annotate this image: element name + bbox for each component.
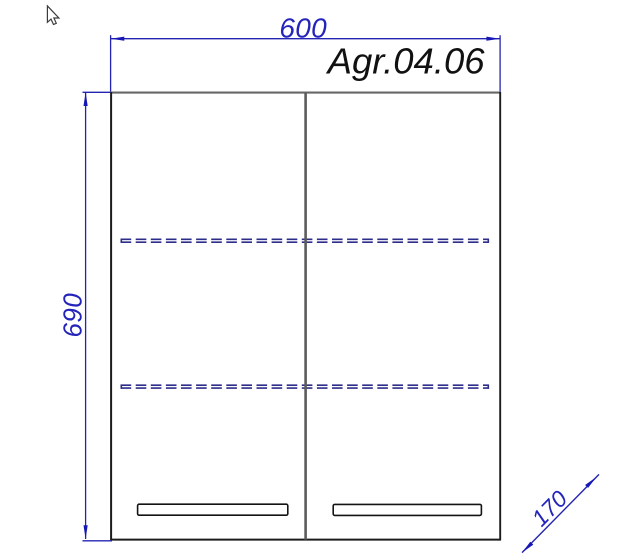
- svg-text:690: 690: [58, 293, 88, 338]
- svg-text:600: 600: [279, 12, 327, 43]
- svg-text:Agr.04.06: Agr.04.06: [326, 40, 486, 81]
